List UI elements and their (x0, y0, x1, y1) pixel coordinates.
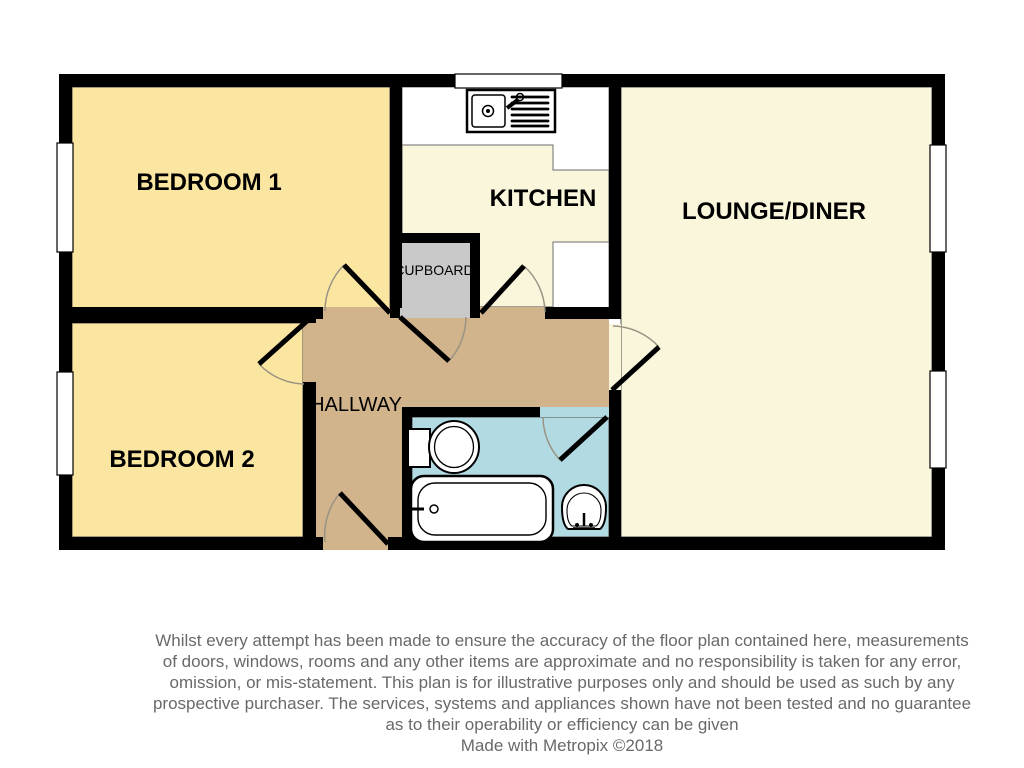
cupboard-wall-top (390, 233, 480, 243)
disclaimer-line: prospective purchaser. The services, sys… (100, 693, 1024, 714)
front-door-opening (323, 537, 388, 550)
bathroom-door-opening (540, 407, 609, 417)
bedroom2-label: BEDROOM 2 (109, 446, 254, 473)
bedroom1-door-opening (323, 307, 390, 319)
basin-tap-left (575, 523, 579, 527)
wall-bathroom-top (402, 407, 540, 417)
wall-kitchen-south (545, 307, 621, 319)
disclaimer-line: of doors, windows, rooms and any other i… (100, 651, 1024, 672)
basin-icon (562, 485, 606, 529)
disclaimer-line: omission, or mis-statement. This plan is… (100, 672, 1024, 693)
basin-tap-right (589, 523, 593, 527)
lounge-floor (621, 87, 932, 537)
lounge-label: LOUNGE/DINER (682, 198, 866, 225)
toilet-cistern (408, 429, 430, 467)
cupboard-label: CUPBOARD (394, 262, 473, 278)
bedroom2-door-opening (303, 323, 316, 382)
kitchen-sink-icon (467, 90, 555, 132)
bath-outline (411, 476, 553, 542)
cupboard-wall-right (470, 243, 480, 318)
toilet-icon (408, 421, 479, 473)
floorplan-drawing: BEDROOM 1 BEDROOM 2 KITCHEN LOUNGE/DINER… (0, 0, 1024, 620)
window-bedroom1 (57, 143, 73, 252)
counter-right-run (553, 242, 609, 308)
bedroom1-label: BEDROOM 1 (136, 169, 281, 196)
disclaimer-line: as to their operability or efficiency ca… (100, 714, 1024, 735)
disclaimer-line: Whilst every attempt has been made to en… (100, 630, 1024, 651)
toilet-bowl (429, 421, 479, 473)
disclaimer: Whilst every attempt has been made to en… (100, 630, 1024, 756)
metropix-credit: Made with Metropix ©2018 (100, 735, 1024, 756)
window-lounge-upper (930, 145, 946, 252)
bath-icon (403, 476, 553, 542)
sink-drain-dot (486, 109, 490, 113)
bath-tap (403, 503, 411, 515)
wall-lounge-west-lower (609, 390, 621, 537)
wall-exterior-bottom-left (59, 537, 323, 550)
bedroom1-floor (72, 87, 390, 308)
hallway-label: HALLWAY (310, 394, 402, 416)
floorplan-page: { "rooms": { "bedroom1": {"label": "BEDR… (0, 0, 1024, 768)
wall-bedroom-divider (72, 312, 316, 323)
window-bedroom2 (57, 372, 73, 475)
kitchen-door-opening (480, 307, 545, 319)
hallway-floor-lower (316, 407, 402, 537)
kitchen-label: KITCHEN (490, 185, 597, 212)
wall-kitchen-lounge (609, 87, 621, 318)
cupboard-floor (400, 243, 470, 318)
window-kitchen (455, 74, 562, 88)
window-lounge-lower (930, 371, 946, 468)
